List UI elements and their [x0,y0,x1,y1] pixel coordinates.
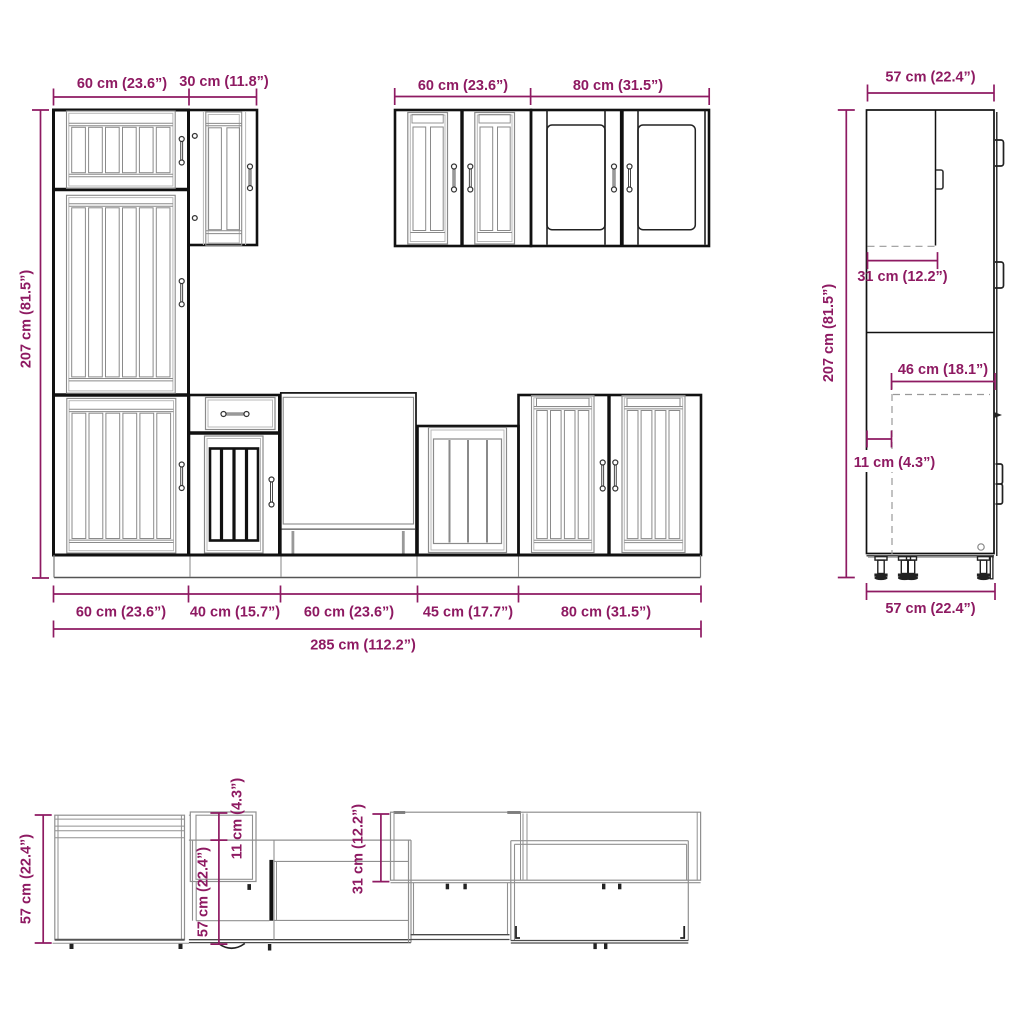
svg-text:57 cm (22.4”): 57 cm (22.4”) [196,847,212,937]
svg-text:46 cm (18.1”): 46 cm (18.1”) [898,362,988,378]
svg-text:57 cm (22.4”): 57 cm (22.4”) [19,834,35,924]
svg-text:60 cm (23.6”): 60 cm (23.6”) [418,78,508,94]
svg-text:11 cm (4.3”): 11 cm (4.3”) [230,778,246,860]
svg-text:45 cm (17.7”): 45 cm (17.7”) [423,605,513,621]
svg-text:57 cm (22.4”): 57 cm (22.4”) [885,601,975,617]
svg-text:60 cm (23.6”): 60 cm (23.6”) [76,605,166,621]
svg-text:31 cm (12.2”): 31 cm (12.2”) [857,269,947,285]
svg-text:207 cm (81.5”): 207 cm (81.5”) [821,284,837,383]
svg-text:80 cm (31.5”): 80 cm (31.5”) [573,78,663,94]
svg-text:31 cm (12.2”): 31 cm (12.2”) [351,804,367,894]
svg-text:80 cm (31.5”): 80 cm (31.5”) [561,605,651,621]
svg-text:30 cm (11.8”): 30 cm (11.8”) [179,74,269,90]
svg-text:60 cm (23.6”): 60 cm (23.6”) [304,605,394,621]
svg-text:11 cm (4.3”): 11 cm (4.3”) [854,455,936,471]
svg-text:207 cm (81.5”): 207 cm (81.5”) [19,270,35,369]
svg-text:40 cm (15.7”): 40 cm (15.7”) [190,605,280,621]
svg-text:57 cm (22.4”): 57 cm (22.4”) [885,70,975,86]
svg-text:60 cm (23.6”): 60 cm (23.6”) [77,76,167,92]
svg-text:285 cm (112.2”): 285 cm (112.2”) [310,638,416,654]
